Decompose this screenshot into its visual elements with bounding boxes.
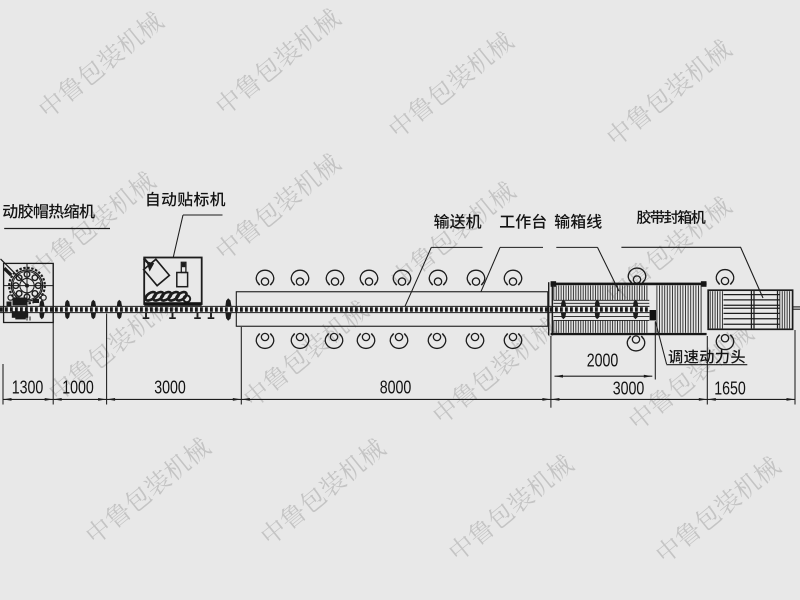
svg-text:3000: 3000	[154, 378, 186, 398]
svg-text:1000: 1000	[62, 378, 94, 398]
svg-text:3000: 3000	[613, 379, 645, 399]
svg-text:1300: 1300	[12, 378, 44, 398]
svg-text:1650: 1650	[714, 379, 746, 399]
svg-text:8000: 8000	[380, 378, 412, 398]
svg-text:2000: 2000	[587, 351, 619, 371]
